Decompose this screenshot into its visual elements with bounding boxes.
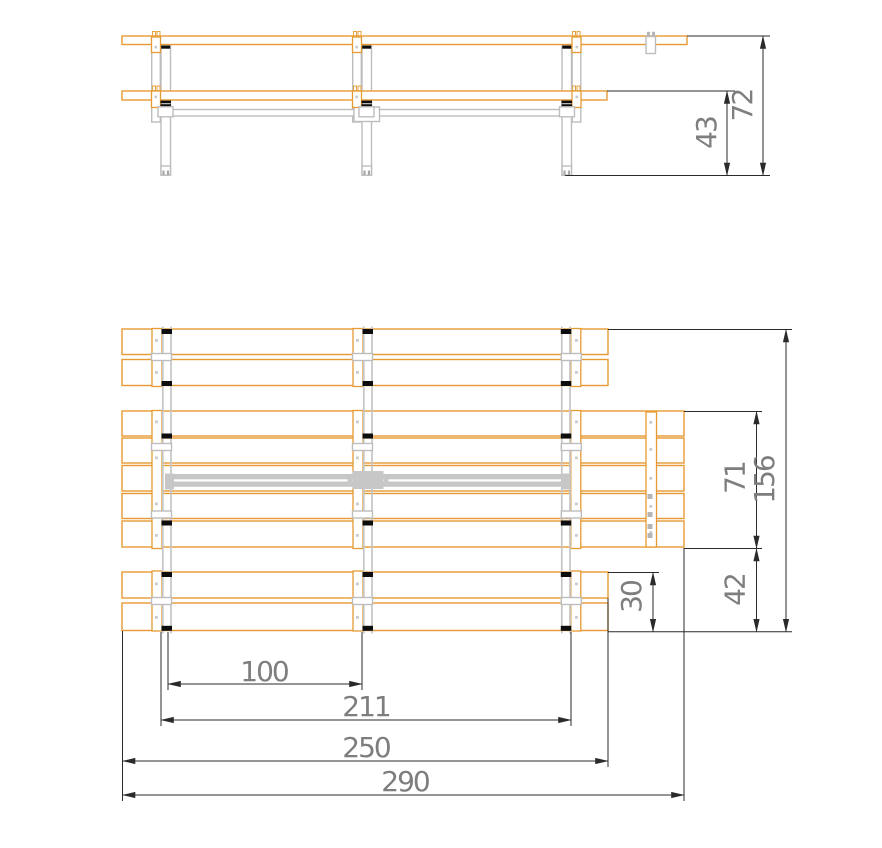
dimension-text-overall-height: 72 xyxy=(726,90,759,122)
plan-view: 156 71 42 30 100 211 250 290 xyxy=(122,327,792,802)
plan-plank-seat-4 xyxy=(122,494,684,519)
bench-technical-drawing: 43 72 xyxy=(0,0,882,848)
elevation-right-support-bracket xyxy=(646,32,656,54)
elevation-tabletop-plank xyxy=(122,36,687,45)
dimension-text-leg-spacing: 100 xyxy=(240,655,288,688)
dimension-text-bench-depth: 30 xyxy=(615,581,648,613)
dimension-text-seat-depth: 71 xyxy=(719,462,752,494)
plan-right-support-bracket xyxy=(646,412,657,547)
dimension-text-short-plank: 250 xyxy=(342,731,390,764)
plan-plank-seat-5 xyxy=(122,521,684,547)
plan-plank-seat-1 xyxy=(122,411,684,436)
dimension-text-seat-to-bench: 42 xyxy=(719,574,752,606)
dimension-text-leg-span: 211 xyxy=(342,690,390,723)
elevation-dimensions: 43 72 xyxy=(565,36,770,176)
plan-planks xyxy=(122,329,684,631)
dimension-text-seat-height: 43 xyxy=(690,117,723,149)
plan-plank-seat-2 xyxy=(122,438,684,463)
dimension-text-long-plank: 290 xyxy=(381,765,429,798)
dimension-text-total-depth: 156 xyxy=(748,455,781,504)
elevation-seat-plank xyxy=(122,91,607,100)
plan-dimensions: 156 71 42 30 100 211 250 290 xyxy=(123,330,793,802)
elevation-view: 43 72 xyxy=(122,32,770,176)
drawing-canvas: 43 72 xyxy=(0,0,882,848)
